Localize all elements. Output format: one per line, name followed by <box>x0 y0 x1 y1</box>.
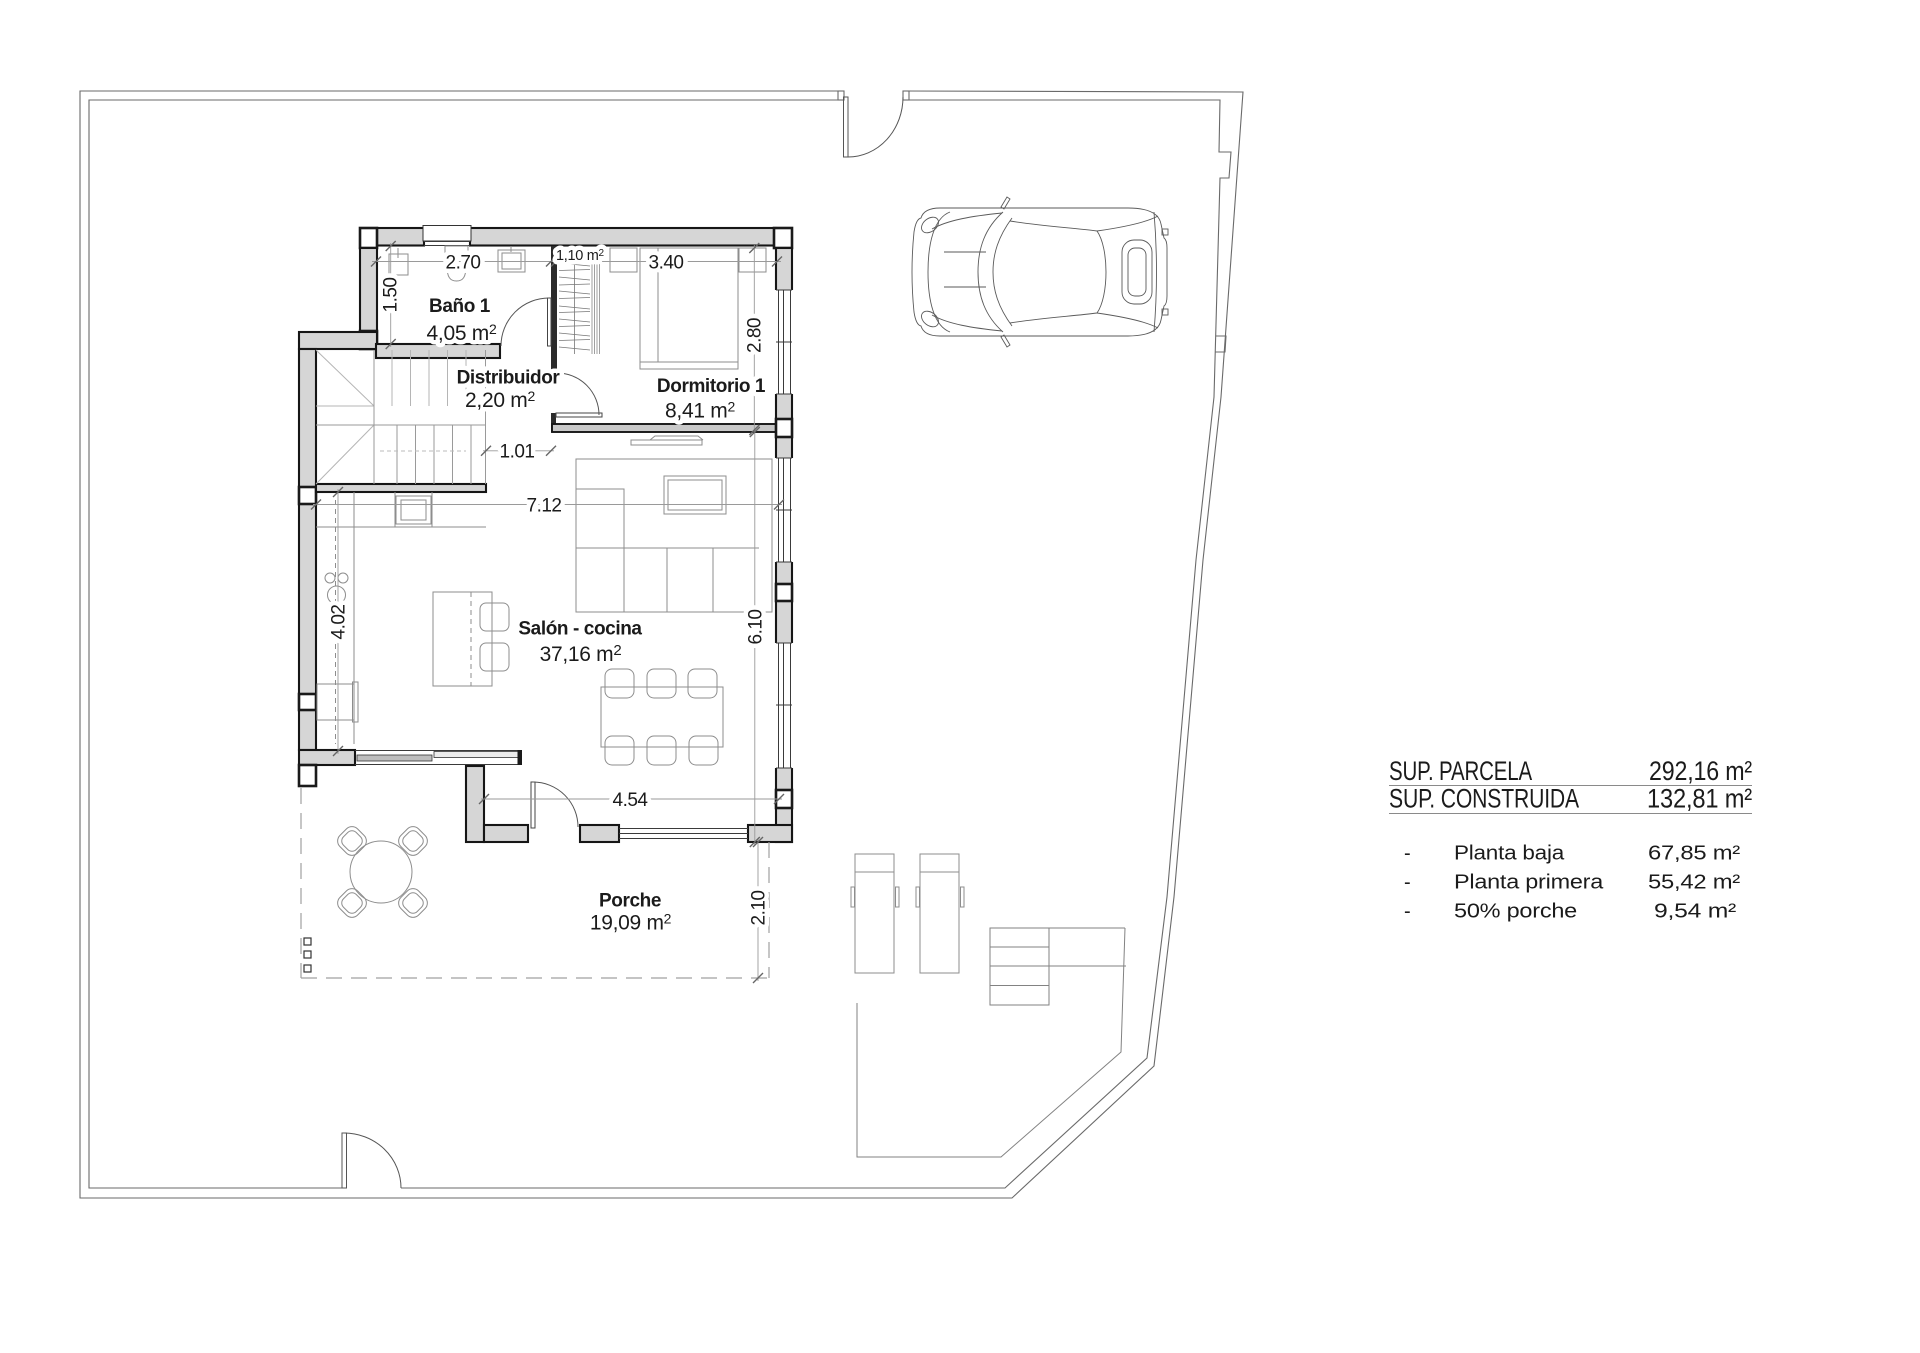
svg-text:6.10: 6.10 <box>746 610 767 645</box>
svg-text:67,85 m²: 67,85 m² <box>1648 843 1741 865</box>
svg-text:55,42 m²: 55,42 m² <box>1648 872 1741 894</box>
svg-text:9,54 m²: 9,54 m² <box>1654 901 1737 923</box>
svg-text:1,10 m2: 1,10 m2 <box>556 248 605 264</box>
svg-text:Baño 1: Baño 1 <box>429 296 491 317</box>
svg-text:4.54: 4.54 <box>613 790 649 811</box>
svg-text:2.10: 2.10 <box>749 891 770 926</box>
svg-text:Distribuidor: Distribuidor <box>457 368 561 389</box>
svg-text:SUP. CONSTRUIDA: SUP. CONSTRUIDA <box>1389 784 1579 814</box>
svg-text:2,20 m2: 2,20 m2 <box>465 388 535 412</box>
svg-text:SUP. PARCELA: SUP. PARCELA <box>1389 756 1532 786</box>
svg-text:4,05 m2: 4,05 m2 <box>427 321 497 345</box>
svg-text:132,81 m²: 132,81 m² <box>1647 784 1752 814</box>
svg-text:37,16 m2: 37,16 m2 <box>540 642 622 666</box>
svg-text:2.80: 2.80 <box>745 318 766 353</box>
svg-text:1.50: 1.50 <box>381 278 402 313</box>
svg-text:Porche: Porche <box>599 890 661 911</box>
svg-text:292,16 m²: 292,16 m² <box>1649 756 1752 786</box>
svg-text:Dormitorio 1: Dormitorio 1 <box>657 376 766 397</box>
svg-text:8,41 m2: 8,41 m2 <box>665 399 735 423</box>
svg-text:2.70: 2.70 <box>446 252 481 273</box>
svg-text:3.40: 3.40 <box>649 252 684 273</box>
svg-text:7.12: 7.12 <box>527 496 562 517</box>
svg-text:19,09 m2: 19,09 m2 <box>590 911 672 935</box>
svg-text:Planta primera: Planta primera <box>1454 872 1604 894</box>
svg-text:Salón - cocina: Salón - cocina <box>518 619 642 640</box>
svg-text:Planta baja: Planta baja <box>1454 843 1565 865</box>
svg-text:1.01: 1.01 <box>500 442 535 463</box>
svg-text:-: - <box>1404 901 1410 923</box>
svg-text:-: - <box>1404 872 1410 894</box>
svg-text:4.02: 4.02 <box>329 605 350 640</box>
svg-text:-: - <box>1404 843 1410 865</box>
svg-text:50% porche: 50% porche <box>1454 901 1577 923</box>
